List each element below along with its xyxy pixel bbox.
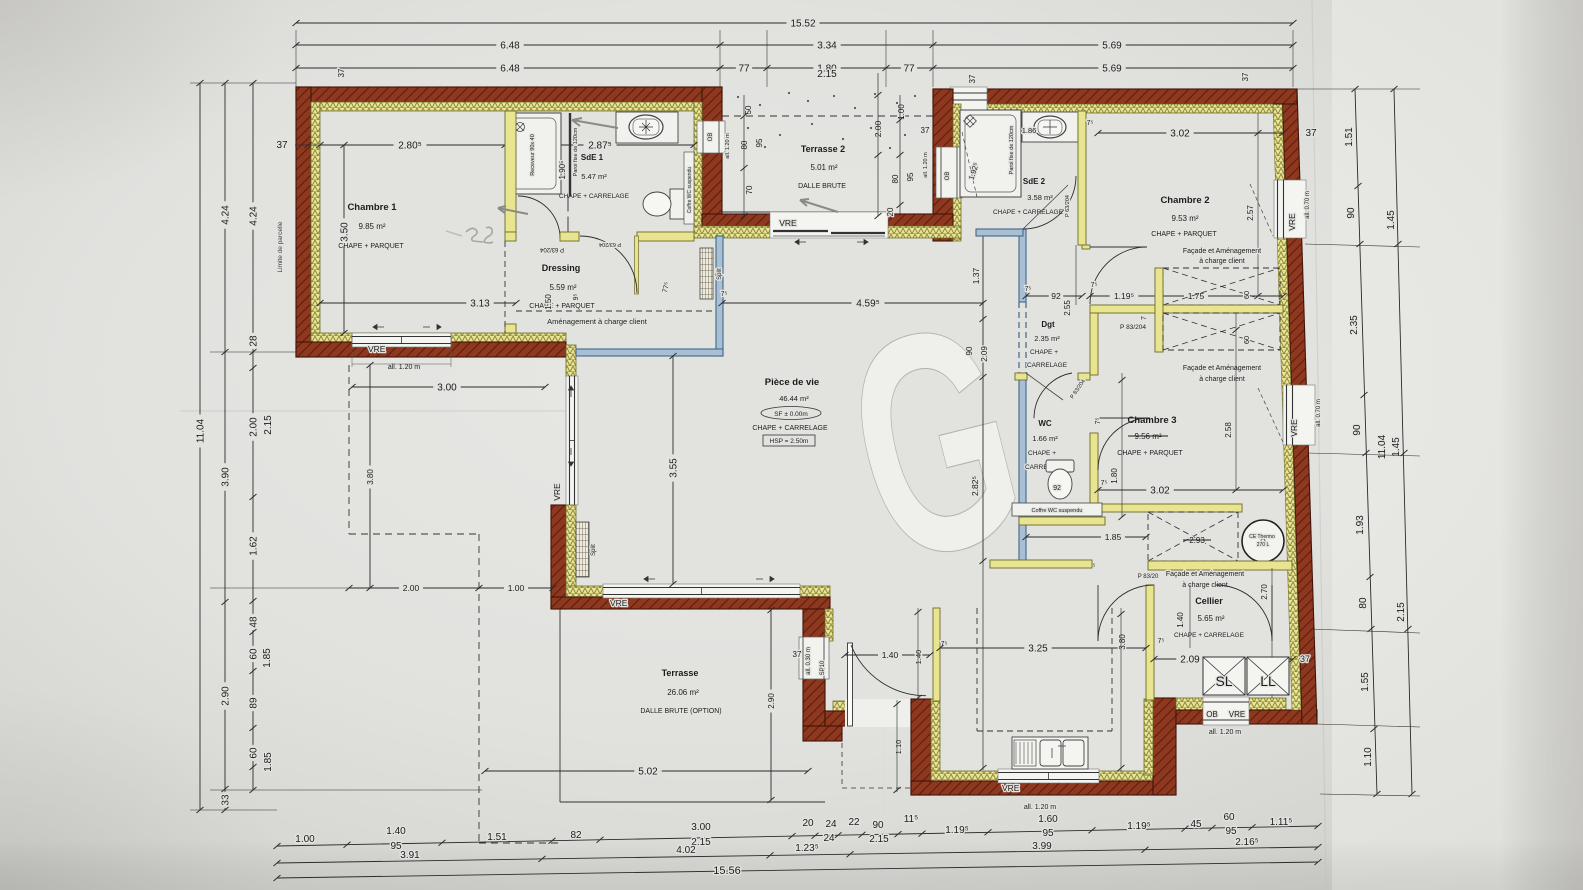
svg-text:2.35 m²: 2.35 m²	[1034, 334, 1060, 343]
svg-text:5.47 m²: 5.47 m²	[581, 172, 607, 181]
svg-text:all. 1.20 m: all. 1.20 m	[725, 133, 731, 159]
svg-text:1.93: 1.93	[1355, 515, 1366, 535]
svg-text:2.35: 2.35	[1349, 315, 1360, 335]
svg-text:VRE: VRE	[779, 218, 797, 228]
svg-text:1.60: 1.60	[1038, 814, 1058, 825]
svg-text:89: 89	[249, 697, 260, 709]
svg-text:CHAPE + CARRELAGE: CHAPE + CARRELAGE	[1174, 632, 1245, 639]
svg-text:VRE: VRE	[610, 598, 628, 608]
svg-text:all. 1.20 m: all. 1.20 m	[923, 152, 929, 178]
svg-text:CHAPE + PARQUET: CHAPE + PARQUET	[1151, 231, 1217, 238]
svg-text:all. 1.20 m: all. 1.20 m	[1024, 804, 1056, 811]
svg-text:1.23⁵: 1.23⁵	[795, 843, 819, 854]
svg-text:1.66 m²: 1.66 m²	[1032, 434, 1058, 443]
svg-text:1.86: 1.86	[1022, 126, 1037, 135]
svg-text:2.15: 2.15	[1396, 602, 1407, 622]
svg-text:VRE: VRE	[368, 344, 386, 354]
svg-text:5.01 m²: 5.01 m²	[810, 163, 837, 172]
svg-text:6.48: 6.48	[500, 41, 520, 52]
svg-text:95: 95	[1225, 826, 1237, 837]
svg-text:37: 37	[1300, 654, 1310, 664]
svg-text:3.58 m²: 3.58 m²	[1027, 193, 1053, 202]
svg-text:5.02: 5.02	[638, 767, 658, 778]
svg-text:2.57: 2.57	[1246, 205, 1255, 221]
svg-text:1.11⁵: 1.11⁵	[1270, 817, 1293, 828]
svg-text:46.44 m²: 46.44 m²	[779, 394, 809, 403]
svg-text:3.13: 3.13	[470, 299, 490, 310]
svg-text:1.37: 1.37	[971, 267, 981, 284]
svg-text:Paroi fixe de 120cm: Paroi fixe de 120cm	[1009, 125, 1015, 174]
svg-text:1.40: 1.40	[386, 826, 406, 837]
svg-text:SdE 2: SdE 2	[1023, 177, 1046, 186]
svg-text:P 83/204: P 83/204	[1120, 324, 1146, 331]
svg-text:2.70: 2.70	[1260, 584, 1269, 600]
svg-text:1.19⁵: 1.19⁵	[945, 825, 969, 836]
svg-text:all. 0.70 m: all. 0.70 m	[1316, 399, 1322, 427]
svg-text:Dressing: Dressing	[542, 263, 581, 273]
svg-text:1.19⁵: 1.19⁵	[1114, 291, 1134, 301]
svg-text:9⁵: 9⁵	[573, 294, 580, 301]
svg-text:1.10: 1.10	[894, 740, 903, 755]
svg-text:1.19⁵: 1.19⁵	[1127, 821, 1151, 832]
svg-text:OB: OB	[708, 133, 714, 142]
svg-text:9.53 m²: 9.53 m²	[1171, 214, 1198, 223]
svg-text:7⁵: 7⁵	[1025, 286, 1032, 293]
svg-text:1.55: 1.55	[1360, 672, 1371, 692]
svg-text:VRE: VRE	[552, 483, 562, 501]
svg-text:90: 90	[1352, 424, 1363, 436]
svg-text:37: 37	[921, 126, 930, 135]
svg-text:CHAPE + CARRELAGE: CHAPE + CARRELAGE	[752, 425, 828, 432]
svg-text:CHAPE + PARQUET: CHAPE + PARQUET	[338, 243, 404, 250]
svg-text:1.51: 1.51	[487, 832, 507, 843]
svg-text:2.09: 2.09	[1180, 655, 1200, 666]
svg-text:2.00: 2.00	[403, 583, 420, 593]
svg-text:2.15: 2.15	[817, 69, 837, 80]
svg-text:Pièce de vie: Pièce de vie	[765, 377, 819, 388]
svg-text:20: 20	[802, 818, 814, 829]
svg-text:all. 0.70 m: all. 0.70 m	[1305, 191, 1311, 219]
svg-text:1.51: 1.51	[1344, 127, 1355, 147]
svg-text:4.02: 4.02	[676, 845, 696, 856]
svg-text:all. 0.30 m: all. 0.30 m	[806, 647, 812, 675]
svg-text:3.80: 3.80	[366, 469, 375, 485]
svg-text:95: 95	[1042, 828, 1054, 839]
svg-text:11⁵: 11⁵	[904, 814, 919, 825]
svg-text:2.55: 2.55	[1063, 300, 1072, 316]
svg-text:1.85: 1.85	[1105, 532, 1122, 542]
svg-text:3.50: 3.50	[340, 222, 351, 242]
svg-text:7⁵: 7⁵	[1087, 120, 1094, 127]
svg-text:SL: SL	[1215, 673, 1232, 689]
svg-text:LL: LL	[1260, 673, 1276, 689]
svg-text:90: 90	[1346, 207, 1357, 219]
svg-text:all. 1.20 m: all. 1.20 m	[388, 364, 420, 371]
svg-text:5.69: 5.69	[1102, 64, 1122, 75]
svg-text:2.58: 2.58	[1224, 422, 1233, 438]
svg-text:90: 90	[965, 346, 974, 355]
svg-text:2.87⁵: 2.87⁵	[588, 141, 612, 152]
svg-text:Limite de parcelle: Limite de parcelle	[277, 221, 284, 272]
svg-text:2.00: 2.00	[249, 417, 260, 437]
svg-text:5.59 m²: 5.59 m²	[549, 283, 576, 292]
svg-text:5.69: 5.69	[1102, 41, 1122, 52]
svg-text:9.56 m²: 9.56 m²	[1134, 432, 1161, 441]
svg-text:Coffre WC suspendu: Coffre WC suspendu	[687, 167, 693, 214]
svg-text:DALLE BRUTE: DALLE BRUTE	[798, 183, 846, 190]
svg-text:Dgt: Dgt	[1041, 320, 1055, 329]
svg-text:45: 45	[1190, 819, 1202, 830]
svg-text:95: 95	[906, 172, 915, 181]
svg-text:1.40: 1.40	[1176, 612, 1185, 628]
svg-text:37: 37	[968, 74, 977, 83]
svg-text:2.15: 2.15	[263, 415, 274, 435]
svg-text:WC: WC	[1038, 419, 1052, 428]
svg-text:CHAPE + CARRELAGE: CHAPE + CARRELAGE	[993, 209, 1064, 216]
svg-text:7⁵: 7⁵	[721, 291, 728, 298]
svg-text:60: 60	[249, 747, 260, 759]
svg-text:60: 60	[1242, 336, 1251, 344]
svg-text:1.50: 1.50	[544, 294, 553, 310]
svg-text:1.90⁵: 1.90⁵	[558, 161, 567, 180]
svg-text:Split: Split	[717, 268, 723, 280]
svg-text:15.52: 15.52	[790, 19, 815, 30]
svg-text:1.40: 1.40	[882, 650, 899, 660]
svg-text:33: 33	[221, 794, 232, 806]
svg-text:6.48: 6.48	[500, 64, 520, 75]
svg-text:VRE: VRE	[1289, 419, 1299, 437]
svg-text:24: 24	[825, 819, 837, 830]
svg-text:22: 22	[848, 817, 860, 828]
svg-text:48: 48	[249, 616, 260, 628]
svg-text:4.24: 4.24	[249, 206, 260, 226]
svg-text:1.10: 1.10	[1363, 747, 1374, 767]
svg-text:1.00: 1.00	[897, 104, 906, 120]
svg-text:90: 90	[872, 820, 884, 831]
svg-text:VRE: VRE	[1229, 710, 1245, 719]
svg-text:7⁵: 7⁵	[1091, 282, 1098, 289]
svg-text:80: 80	[1358, 597, 1369, 609]
svg-text:OB: OB	[1206, 710, 1218, 719]
svg-text:80: 80	[891, 174, 900, 183]
svg-text:P 83/20: P 83/20	[1138, 574, 1159, 580]
svg-text:Cellier: Cellier	[1195, 596, 1223, 606]
svg-text:1.85: 1.85	[262, 648, 273, 668]
svg-text:1.00: 1.00	[508, 583, 525, 593]
svg-text:2.15: 2.15	[869, 834, 889, 845]
svg-text:37: 37	[793, 650, 802, 659]
svg-text:7⁵: 7⁵	[1101, 480, 1108, 487]
svg-text:3.80: 3.80	[1118, 634, 1127, 650]
svg-text:SdE 1: SdE 1	[581, 153, 604, 162]
svg-text:3.25: 3.25	[1028, 644, 1048, 655]
svg-text:Chambre 1: Chambre 1	[347, 202, 397, 213]
svg-text:SP10: SP10	[820, 660, 826, 675]
svg-text:à charge client: à charge client	[1199, 258, 1245, 265]
svg-text:1.85: 1.85	[263, 752, 274, 772]
svg-text:2.93: 2.93	[1189, 536, 1205, 545]
svg-text:2.90: 2.90	[767, 693, 776, 709]
svg-text:1.80: 1.80	[1110, 468, 1119, 484]
svg-text:26.06 m²: 26.06 m²	[667, 688, 699, 697]
svg-text:Receveur 90x 40: Receveur 90x 40	[530, 134, 536, 176]
svg-text:3.55: 3.55	[669, 458, 680, 478]
svg-text:Façade et Aménagement: Façade et Aménagement	[1183, 365, 1261, 372]
svg-text:2.16⁵: 2.16⁵	[1235, 837, 1259, 848]
svg-text:CARRELAGE: CARRELAGE	[1027, 362, 1068, 369]
svg-text:11.04: 11.04	[196, 418, 207, 443]
svg-text:3.99: 3.99	[1032, 841, 1052, 852]
svg-text:15.56: 15.56	[713, 865, 741, 877]
svg-text:7⁵: 7⁵	[1095, 418, 1102, 425]
svg-text:Paroi fixe de 120cm: Paroi fixe de 120cm	[573, 127, 579, 176]
svg-text:60: 60	[1242, 291, 1251, 299]
svg-text:Aménagement à charge client: Aménagement à charge client	[547, 317, 648, 326]
svg-text:37: 37	[1241, 72, 1250, 81]
svg-text:4.59⁵: 4.59⁵	[856, 299, 880, 310]
svg-text:20: 20	[886, 207, 895, 216]
svg-text:2.82⁵: 2.82⁵	[970, 476, 980, 496]
svg-text:VRE: VRE	[1287, 213, 1297, 231]
svg-text:3.00: 3.00	[437, 383, 457, 394]
svg-text:HSP = 2.50m: HSP = 2.50m	[770, 438, 809, 445]
svg-text:3.00: 3.00	[691, 822, 711, 833]
svg-text:4.24: 4.24	[221, 205, 232, 225]
svg-text:3.91: 3.91	[400, 850, 420, 861]
svg-text:VRE: VRE	[1002, 783, 1020, 793]
svg-text:Split: Split	[591, 544, 597, 556]
svg-text:CHAPE +: CHAPE +	[1028, 450, 1056, 457]
svg-text:77: 77	[738, 64, 750, 75]
svg-text:1.45: 1.45	[1386, 210, 1397, 230]
svg-text:82: 82	[570, 830, 582, 841]
svg-text:Chambre 2: Chambre 2	[1160, 195, 1209, 206]
svg-text:37: 37	[337, 68, 346, 77]
svg-text:50: 50	[744, 105, 753, 114]
svg-text:P 63/204: P 63/204	[1065, 195, 1071, 217]
svg-text:92: 92	[1053, 485, 1061, 492]
svg-text:Terrasse: Terrasse	[662, 668, 699, 678]
svg-text:1.00: 1.00	[295, 834, 315, 845]
svg-text:1.45: 1.45	[1391, 437, 1402, 457]
svg-text:P 63/204: P 63/204	[599, 241, 621, 247]
svg-text:CHAPE + PARQUET: CHAPE + PARQUET	[1117, 450, 1183, 457]
svg-text:2.90: 2.90	[221, 686, 232, 706]
svg-text:7⁵: 7⁵	[1158, 638, 1165, 645]
svg-text:37: 37	[1305, 128, 1317, 139]
svg-text:2.09: 2.09	[980, 346, 989, 362]
svg-text:3.90: 3.90	[221, 467, 232, 487]
svg-text:2.80⁵: 2.80⁵	[398, 141, 422, 152]
svg-text:CE Thermo: CE Thermo	[1249, 534, 1275, 540]
svg-text:24: 24	[823, 833, 835, 844]
svg-text:92: 92	[1051, 291, 1061, 301]
svg-text:9.85 m²: 9.85 m²	[358, 222, 385, 231]
svg-text:7: 7	[1141, 316, 1148, 320]
svg-text:OB: OB	[945, 172, 951, 181]
svg-text:Coffre WC suspendu: Coffre WC suspendu	[1032, 508, 1083, 514]
svg-text:5.65 m²: 5.65 m²	[1197, 614, 1224, 623]
svg-text:37: 37	[276, 140, 288, 151]
svg-text:CHAPE +: CHAPE +	[1030, 349, 1058, 356]
svg-text:270 L: 270 L	[1257, 542, 1270, 548]
svg-text:3.02: 3.02	[1150, 486, 1170, 497]
svg-text:3.02: 3.02	[1170, 129, 1190, 140]
svg-text:CHAPE + PARQUET: CHAPE + PARQUET	[529, 303, 595, 310]
svg-text:11.04: 11.04	[1377, 434, 1388, 459]
svg-text:P 63/204: P 63/204	[539, 246, 564, 252]
svg-text:3.34: 3.34	[817, 41, 837, 52]
svg-text:SF ± 0.00m: SF ± 0.00m	[774, 411, 808, 418]
svg-text:28: 28	[249, 335, 260, 347]
svg-text:Façade et Aménagement: Façade et Aménagement	[1183, 248, 1261, 255]
svg-text:1.62: 1.62	[249, 536, 260, 556]
svg-text:70: 70	[745, 185, 754, 194]
svg-text:95: 95	[755, 138, 764, 147]
svg-text:à charge client: à charge client	[1199, 376, 1245, 383]
svg-text:80: 80	[740, 140, 749, 149]
svg-text:Façade et Aménagement: Façade et Aménagement	[1166, 571, 1244, 578]
svg-text:DALLE BRUTE (OPTION): DALLE BRUTE (OPTION)	[640, 708, 721, 715]
svg-text:Terrasse 2: Terrasse 2	[801, 144, 845, 154]
svg-text:60: 60	[249, 648, 260, 660]
svg-text:all. 1.20 m: all. 1.20 m	[1209, 729, 1241, 736]
svg-text:60: 60	[1223, 812, 1235, 823]
svg-text:1.40: 1.40	[914, 650, 923, 665]
svg-text:77: 77	[903, 64, 915, 75]
